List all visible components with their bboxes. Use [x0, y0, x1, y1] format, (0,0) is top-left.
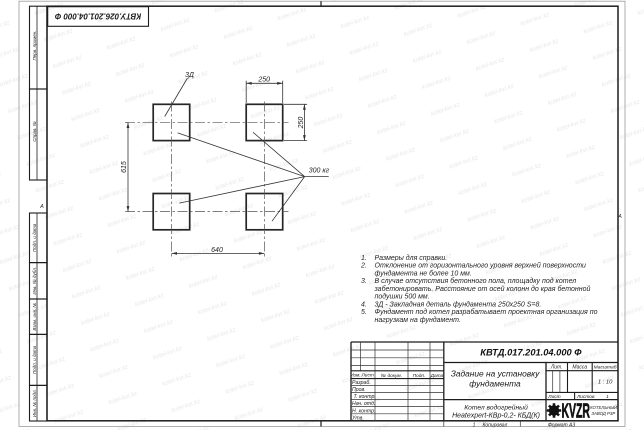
- svg-text:5.: 5.: [361, 309, 367, 316]
- svg-text:ЗАВОД РЗР: ЗАВОД РЗР: [591, 411, 615, 416]
- svg-text:Копировал: Копировал: [482, 423, 507, 429]
- svg-text:300 кг: 300 кг: [309, 168, 330, 175]
- svg-text:Формат А3: Формат А3: [548, 423, 576, 429]
- svg-text:Лит.: Лит.: [550, 365, 563, 371]
- svg-text:Котел водогрейный: Котел водогрейный: [464, 404, 528, 412]
- svg-text:фундамента не более 10 мм.: фундамента не более 10 мм.: [375, 269, 472, 277]
- svg-text:А: А: [39, 204, 44, 210]
- svg-text:Дата: Дата: [430, 373, 444, 379]
- svg-text:1: 1: [473, 423, 476, 429]
- svg-text:3.: 3.: [361, 278, 367, 285]
- svg-text:4.: 4.: [361, 301, 367, 308]
- svg-text:Разраб.: Разраб.: [352, 380, 371, 386]
- svg-text:Инв. № дубл.: Инв. № дубл.: [32, 267, 37, 295]
- svg-text:3Д: 3Д: [185, 72, 194, 79]
- svg-text:Инв. № подл.: Инв. № подл.: [32, 389, 37, 417]
- svg-text:фундамента: фундамента: [469, 379, 521, 389]
- svg-text:Подп. и дата: Подп. и дата: [32, 223, 37, 252]
- svg-text:КВТД.017.201.04.000 Ф: КВТД.017.201.04.000 Ф: [480, 347, 582, 357]
- svg-text:Пров.: Пров.: [352, 387, 366, 393]
- svg-text:1 : 10: 1 : 10: [598, 380, 613, 386]
- svg-text:1: 1: [606, 394, 609, 400]
- svg-text:Масса: Масса: [572, 365, 587, 371]
- svg-text:Взам. инв. №: Взам. инв. №: [32, 303, 37, 331]
- svg-text:Утв.: Утв.: [352, 415, 364, 421]
- svg-text:нагрузкам на фундамент.: нагрузкам на фундамент.: [375, 316, 461, 324]
- svg-text:КВТУ.026.201.04.000 Ф: КВТУ.026.201.04.000 Ф: [54, 12, 141, 21]
- svg-text:Лист: Лист: [547, 394, 560, 400]
- svg-text:2.: 2.: [360, 263, 367, 270]
- svg-text:1.: 1.: [361, 255, 367, 262]
- svg-text:Н. контр.: Н. контр.: [352, 408, 375, 414]
- svg-text:А: А: [617, 214, 622, 220]
- svg-text:Задание на установку: Задание на установку: [451, 368, 540, 378]
- svg-text:Подп.: Подп.: [413, 373, 426, 379]
- svg-text:№ докум.: № докум.: [381, 373, 402, 379]
- svg-text:Т. контр.: Т. контр.: [354, 394, 376, 400]
- svg-text:250: 250: [257, 76, 270, 83]
- svg-text:Листов: Листов: [576, 394, 595, 400]
- svg-text:Heatexpert-КВр-0,2- КБД(К): Heatexpert-КВр-0,2- КБД(К): [452, 412, 540, 419]
- svg-text:Подп. и дата: Подп. и дата: [32, 345, 37, 374]
- svg-text:В случае отсутствия бетонного: В случае отсутствия бетонного пола, площ…: [375, 277, 577, 285]
- svg-text:подушки 500 мм.: подушки 500 мм.: [375, 293, 430, 301]
- svg-text:615: 615: [121, 161, 128, 173]
- svg-text:Справ. №: Справ. №: [32, 121, 37, 142]
- svg-text:Отклонение от горизонтального: Отклонение от горизонтального уровня вер…: [375, 262, 587, 270]
- svg-text:забетонировать. Расстояние от: забетонировать. Расстояние от осей колон…: [374, 285, 591, 293]
- svg-text:Размеры для справки.: Размеры для справки.: [375, 254, 448, 262]
- svg-text:3Д - Закладная деталь фундамен: 3Д - Закладная деталь фундамента 250х250…: [375, 300, 542, 308]
- svg-text:KVZR: KVZR: [562, 401, 591, 423]
- svg-text:КОТЕЛЬНЫЙ: КОТЕЛЬНЫЙ: [590, 405, 618, 410]
- svg-text:Перв. примен.: Перв. примен.: [32, 31, 37, 61]
- svg-text:640: 640: [211, 247, 223, 254]
- svg-text:Нач. отд.: Нач. отд.: [352, 401, 375, 407]
- svg-text:Изм.: Изм.: [350, 373, 360, 379]
- svg-text:Лист: Лист: [361, 373, 374, 379]
- svg-text:Масштаб: Масштаб: [594, 365, 617, 371]
- svg-text:250: 250: [298, 117, 305, 130]
- svg-text:Фундамент под котел разрабатыв: Фундамент под котел разрабатывает проект…: [375, 308, 598, 316]
